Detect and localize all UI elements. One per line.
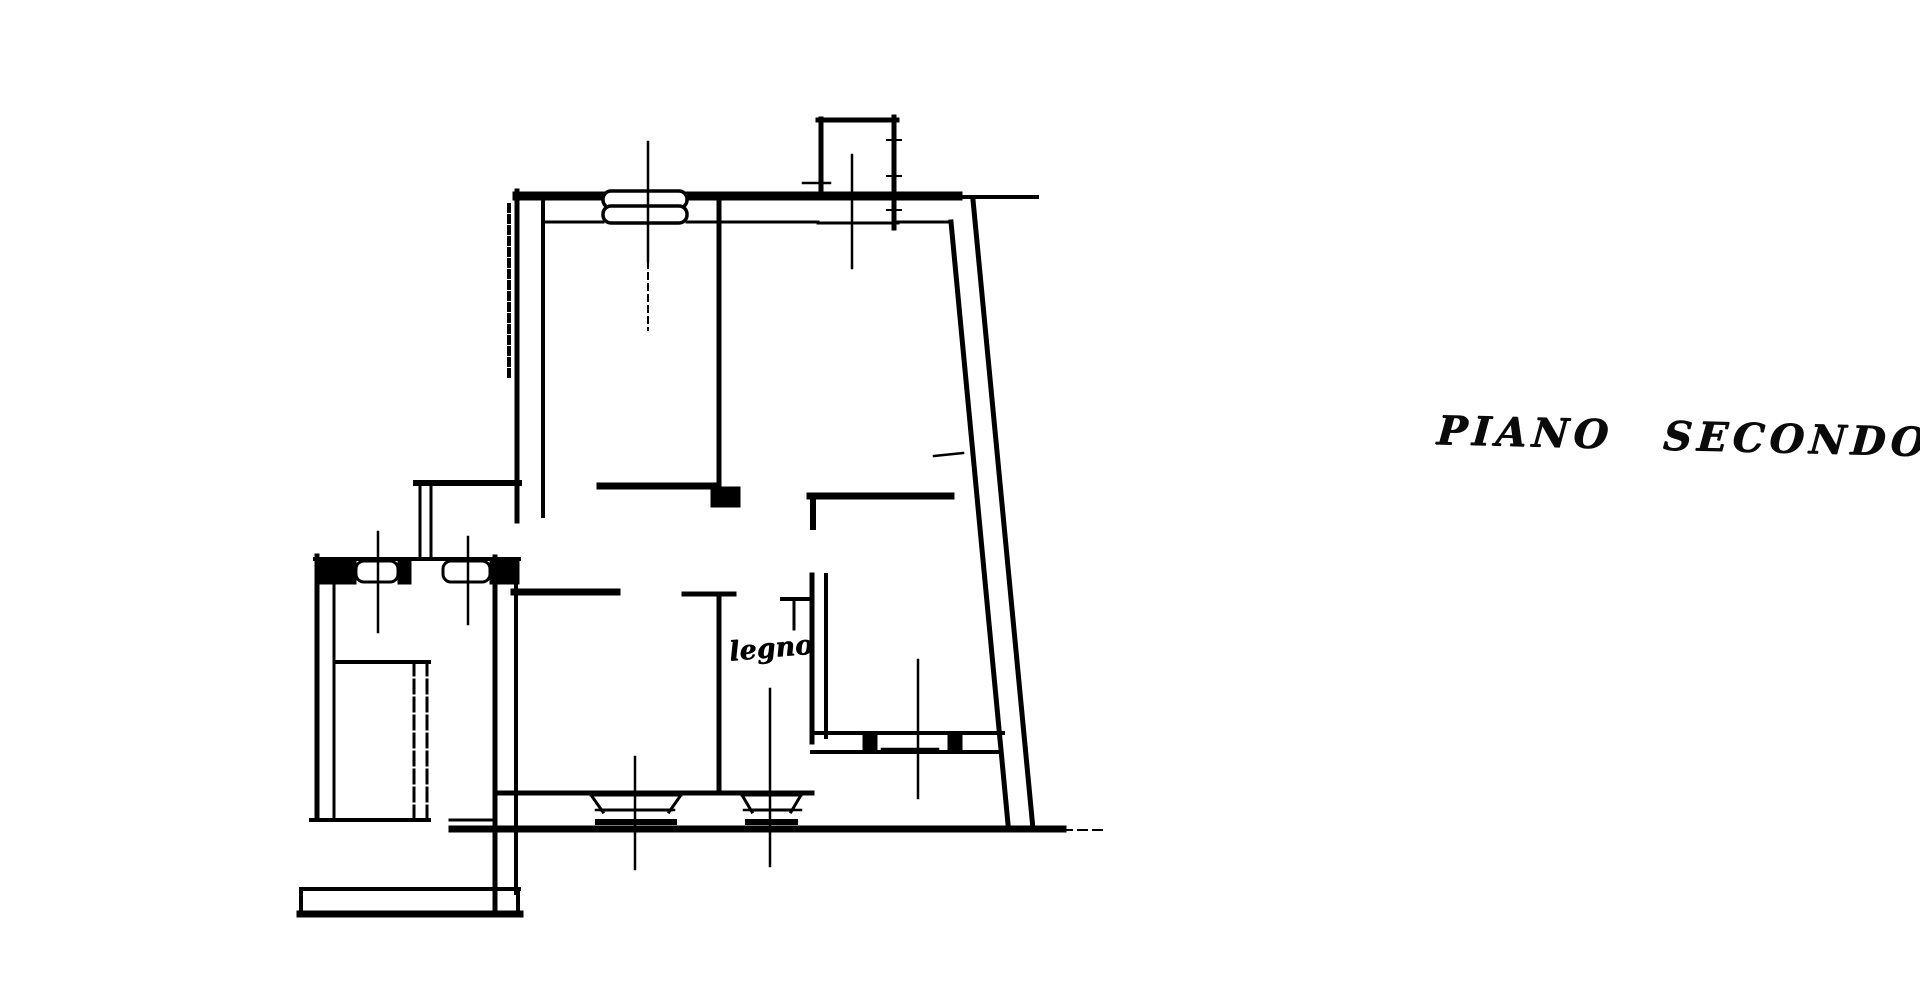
outer-walls [416, 191, 1103, 915]
floor-plan-drawing [0, 0, 1920, 986]
railing-block-right [490, 558, 519, 584]
axis-centerlines [378, 142, 938, 869]
railing-block-left [315, 558, 356, 584]
partition-end-blob [711, 487, 740, 507]
interior-walls [514, 200, 963, 793]
railing-post [398, 558, 411, 584]
top-window-lower-leaf [603, 206, 687, 223]
floor-title-word-1: PIANO [1435, 407, 1615, 458]
br-window-mullion-1 [863, 733, 877, 752]
floor-title-word-2: SECONDO [1661, 413, 1920, 466]
right-wall-tick [934, 453, 963, 456]
top-window [603, 191, 687, 223]
br-window-mullion-2 [948, 733, 962, 752]
railing-window-2 [443, 561, 490, 582]
balcony [300, 556, 520, 914]
